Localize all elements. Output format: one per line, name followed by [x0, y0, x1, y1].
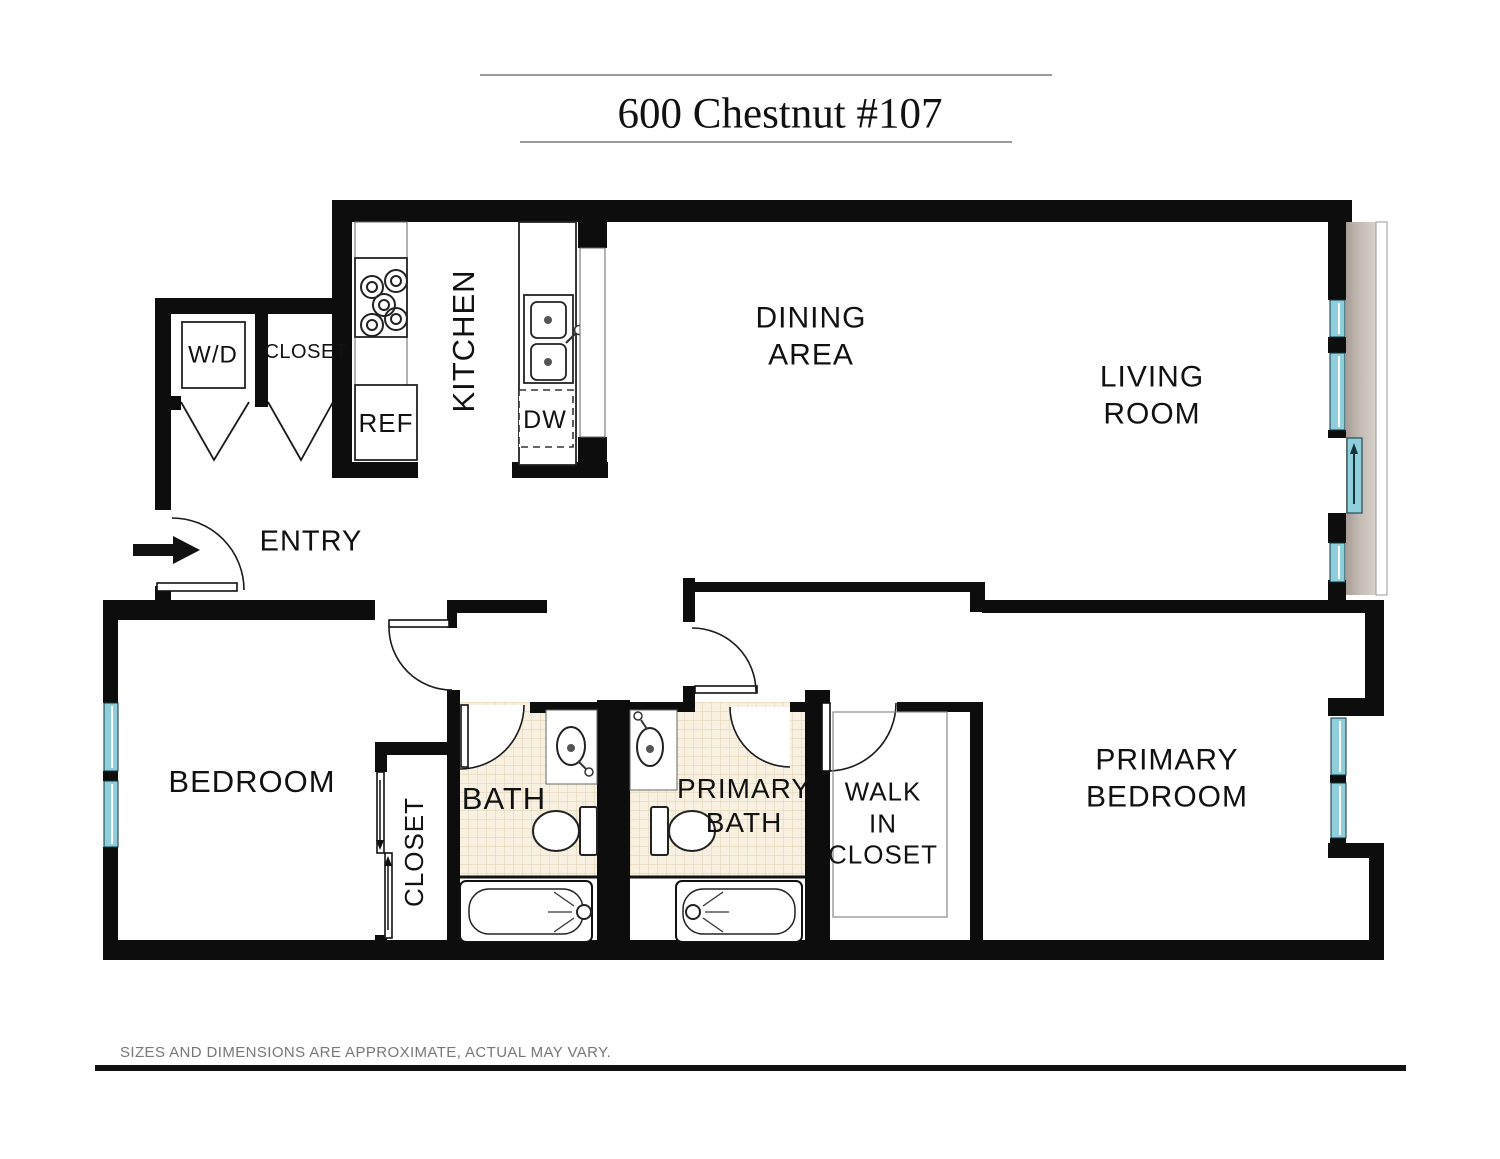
primary-suite-door — [695, 686, 757, 693]
room-label-entry: ENTRY — [260, 524, 363, 559]
room-label-bath: BATH — [462, 780, 546, 818]
bifold-door-icon — [268, 402, 333, 460]
room-label-bedroom: BEDROOM — [168, 763, 335, 801]
sliding-door — [1347, 438, 1362, 513]
footer-rule — [95, 1065, 1406, 1071]
floor-plan-drawing — [0, 0, 1500, 1159]
disclaimer-text: SIZES AND DIMENSIONS ARE APPROXIMATE, AC… — [120, 1044, 611, 1061]
bathtub-icon — [460, 881, 592, 942]
entry-door — [157, 583, 237, 591]
fixture-label-dishwasher: DW — [523, 405, 567, 436]
room-label-kitchen: KITCHEN — [445, 269, 483, 412]
bedroom-closet-sliders — [376, 772, 392, 938]
balcony — [1346, 222, 1387, 595]
bedroom-door — [389, 620, 449, 627]
room-label-primary-bath: PRIMARY BATH — [677, 772, 811, 840]
bifold-door-icon — [181, 402, 249, 460]
fixture-label-washer-dryer: W/D — [188, 340, 238, 369]
room-label-walk-in-closet: WALK IN CLOSET — [828, 776, 938, 871]
bathtub-icon — [676, 881, 802, 942]
room-label-bedroom-closet: CLOSET — [399, 797, 431, 907]
fixture-label-refrigerator: REF — [359, 408, 414, 440]
room-label-living: LIVING ROOM — [1100, 359, 1204, 432]
room-label-dining: DINING AREA — [756, 300, 867, 373]
bath-door — [461, 705, 468, 767]
room-label-primary-bedroom: PRIMARY BEDROOM — [1086, 742, 1248, 815]
fixture-label-hall-closet: CLOSET — [264, 340, 347, 364]
walk-in-closet-door — [822, 703, 830, 771]
floor-plan-page: 600 Chestnut #107 — [0, 0, 1500, 1159]
entry-arrow-icon — [133, 536, 200, 564]
pass-through-counter — [580, 248, 605, 437]
